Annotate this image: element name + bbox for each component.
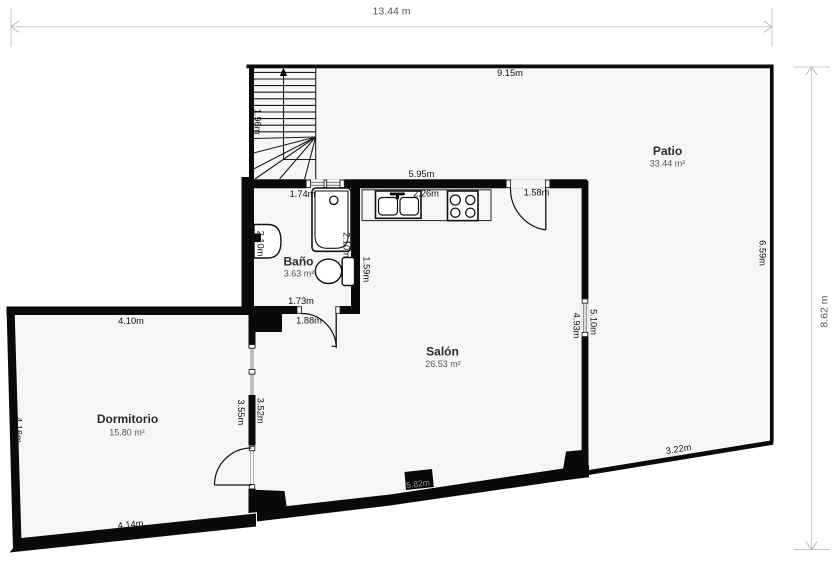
svg-text:4.10m: 4.10m [118, 316, 144, 326]
svg-text:5.10m: 5.10m [589, 309, 599, 335]
svg-text:8.62 m: 8.62 m [819, 295, 831, 327]
svg-text:1.88m: 1.88m [296, 316, 322, 326]
svg-text:2.10m: 2.10m [342, 232, 352, 258]
svg-text:1.73m: 1.73m [288, 296, 314, 306]
svg-text:1.58m: 1.58m [524, 187, 550, 197]
svg-text:26.53 m²: 26.53 m² [425, 359, 461, 369]
svg-text:15.80 m²: 15.80 m² [109, 428, 145, 438]
svg-text:Salón: Salón [426, 345, 459, 359]
svg-text:3.52m: 3.52m [255, 398, 265, 424]
svg-text:1.74m: 1.74m [290, 189, 316, 199]
svg-text:5.95m: 5.95m [408, 169, 434, 179]
svg-text:13.44 m: 13.44 m [373, 6, 411, 18]
svg-text:4.16m: 4.16m [14, 417, 24, 443]
svg-text:1.59m: 1.59m [361, 256, 371, 282]
svg-text:2.10m: 2.10m [256, 231, 266, 257]
svg-text:1.96m: 1.96m [253, 109, 263, 135]
svg-text:Baño: Baño [284, 255, 314, 269]
svg-text:4.93m: 4.93m [572, 313, 582, 339]
svg-text:3.63 m²: 3.63 m² [284, 269, 315, 279]
svg-text:9.15m: 9.15m [497, 68, 523, 78]
svg-text:33.44 m²: 33.44 m² [650, 159, 686, 169]
svg-text:Dormitorio: Dormitorio [97, 412, 158, 426]
svg-text:3.55m: 3.55m [236, 399, 246, 425]
svg-text:Patio: Patio [653, 144, 682, 158]
svg-text:6.59m: 6.59m [758, 240, 768, 266]
svg-text:2.26m: 2.26m [413, 188, 439, 198]
